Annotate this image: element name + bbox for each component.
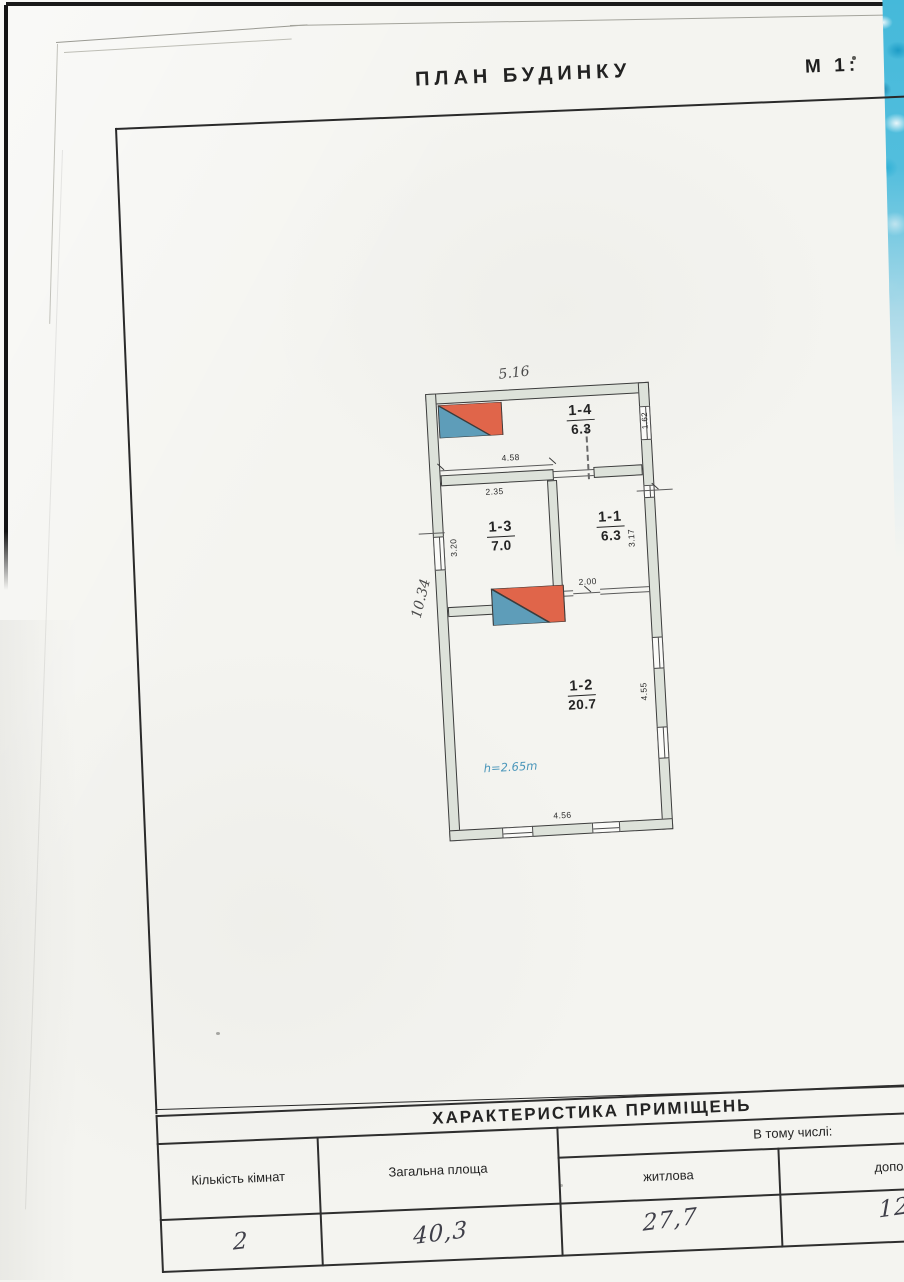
partition-wall (563, 590, 573, 597)
room-label-1-2: 1-2 20.7 (553, 675, 611, 715)
wall-interior (448, 604, 497, 617)
wall-interior (547, 480, 563, 588)
stove-icon (491, 585, 566, 626)
window (657, 726, 670, 759)
room-area: 7.0 (491, 537, 512, 553)
page-title: ПЛАН БУДИНКУ (363, 58, 684, 94)
room-label-1-4: 1-4 6.3 (554, 400, 608, 440)
room-label-1-1: 1-1 6.3 (584, 507, 638, 547)
stove-icon (438, 402, 504, 438)
scale-label: М 1: (805, 51, 904, 79)
floor-plan: 4.58 2.35 3.20 3.17 1.62 2.00 4.55 4.56 … (425, 382, 673, 842)
window (592, 821, 621, 834)
dim-label: 2.00 (565, 575, 609, 587)
room-number: 1-2 (567, 677, 596, 696)
paper-fold-shadow (0, 620, 78, 1280)
room-number: 1-4 (566, 402, 595, 421)
ceiling-height-note: h=2.65m (483, 758, 537, 775)
page-edge-line (290, 14, 902, 26)
scanned-floor-plan-page: { "page": { "title": "ПЛАН БУДИНКУ", "sc… (0, 0, 904, 1280)
partition-wall (600, 586, 649, 595)
room-area: 6.3 (571, 421, 592, 437)
dimension-line (573, 592, 600, 594)
window (502, 826, 534, 839)
wall-interior (593, 464, 643, 478)
room-number: 1-3 (486, 518, 515, 537)
room-label-1-3: 1-3 7.0 (474, 517, 528, 557)
room-area: 6.3 (601, 527, 622, 543)
dim-label: 2.35 (468, 485, 520, 498)
scan-edge-top (6, 2, 904, 6)
dim-label: 4.58 (484, 451, 536, 464)
page-edge-line (64, 38, 292, 53)
wall-interior (441, 469, 554, 486)
dim-label: 4.55 (638, 669, 650, 713)
dim-label: 4.56 (536, 809, 588, 822)
window (433, 536, 446, 571)
scan-edge-left (4, 5, 8, 590)
room-number: 1-1 (596, 508, 625, 527)
dim-label: 3.20 (447, 526, 459, 570)
col-header-rooms: Кількість кімнат (157, 1137, 320, 1219)
window (652, 636, 665, 669)
room-area: 20.7 (568, 696, 597, 713)
